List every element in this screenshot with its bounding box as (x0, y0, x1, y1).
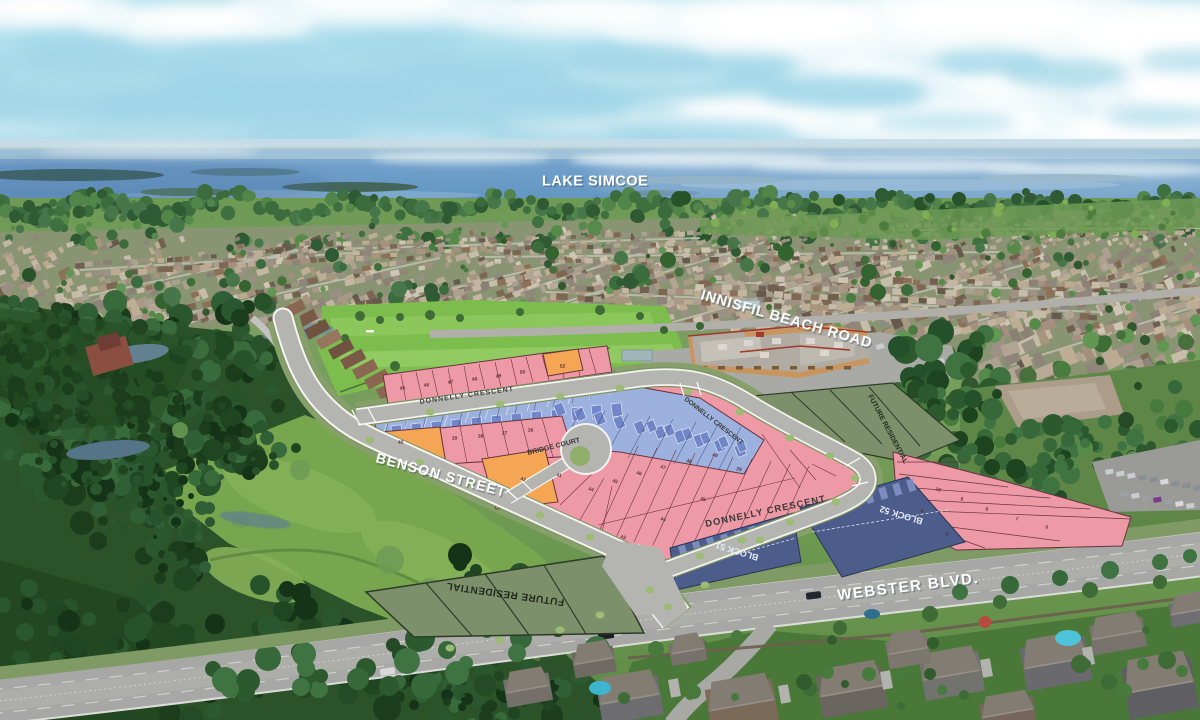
svg-text:38: 38 (478, 433, 484, 440)
svg-text:45: 45 (399, 385, 406, 392)
svg-text:39: 39 (452, 435, 458, 442)
svg-text:48: 48 (471, 376, 478, 383)
svg-text:36: 36 (528, 427, 534, 434)
svg-text:52: 52 (559, 363, 566, 370)
svg-text:46: 46 (423, 382, 430, 389)
svg-text:47: 47 (447, 379, 454, 386)
svg-text:49: 49 (495, 373, 502, 380)
svg-text:40: 40 (398, 439, 404, 446)
svg-text:37: 37 (502, 430, 508, 437)
svg-text:50: 50 (519, 369, 526, 376)
svg-text:LAKE SIMCOE: LAKE SIMCOE (542, 174, 648, 190)
